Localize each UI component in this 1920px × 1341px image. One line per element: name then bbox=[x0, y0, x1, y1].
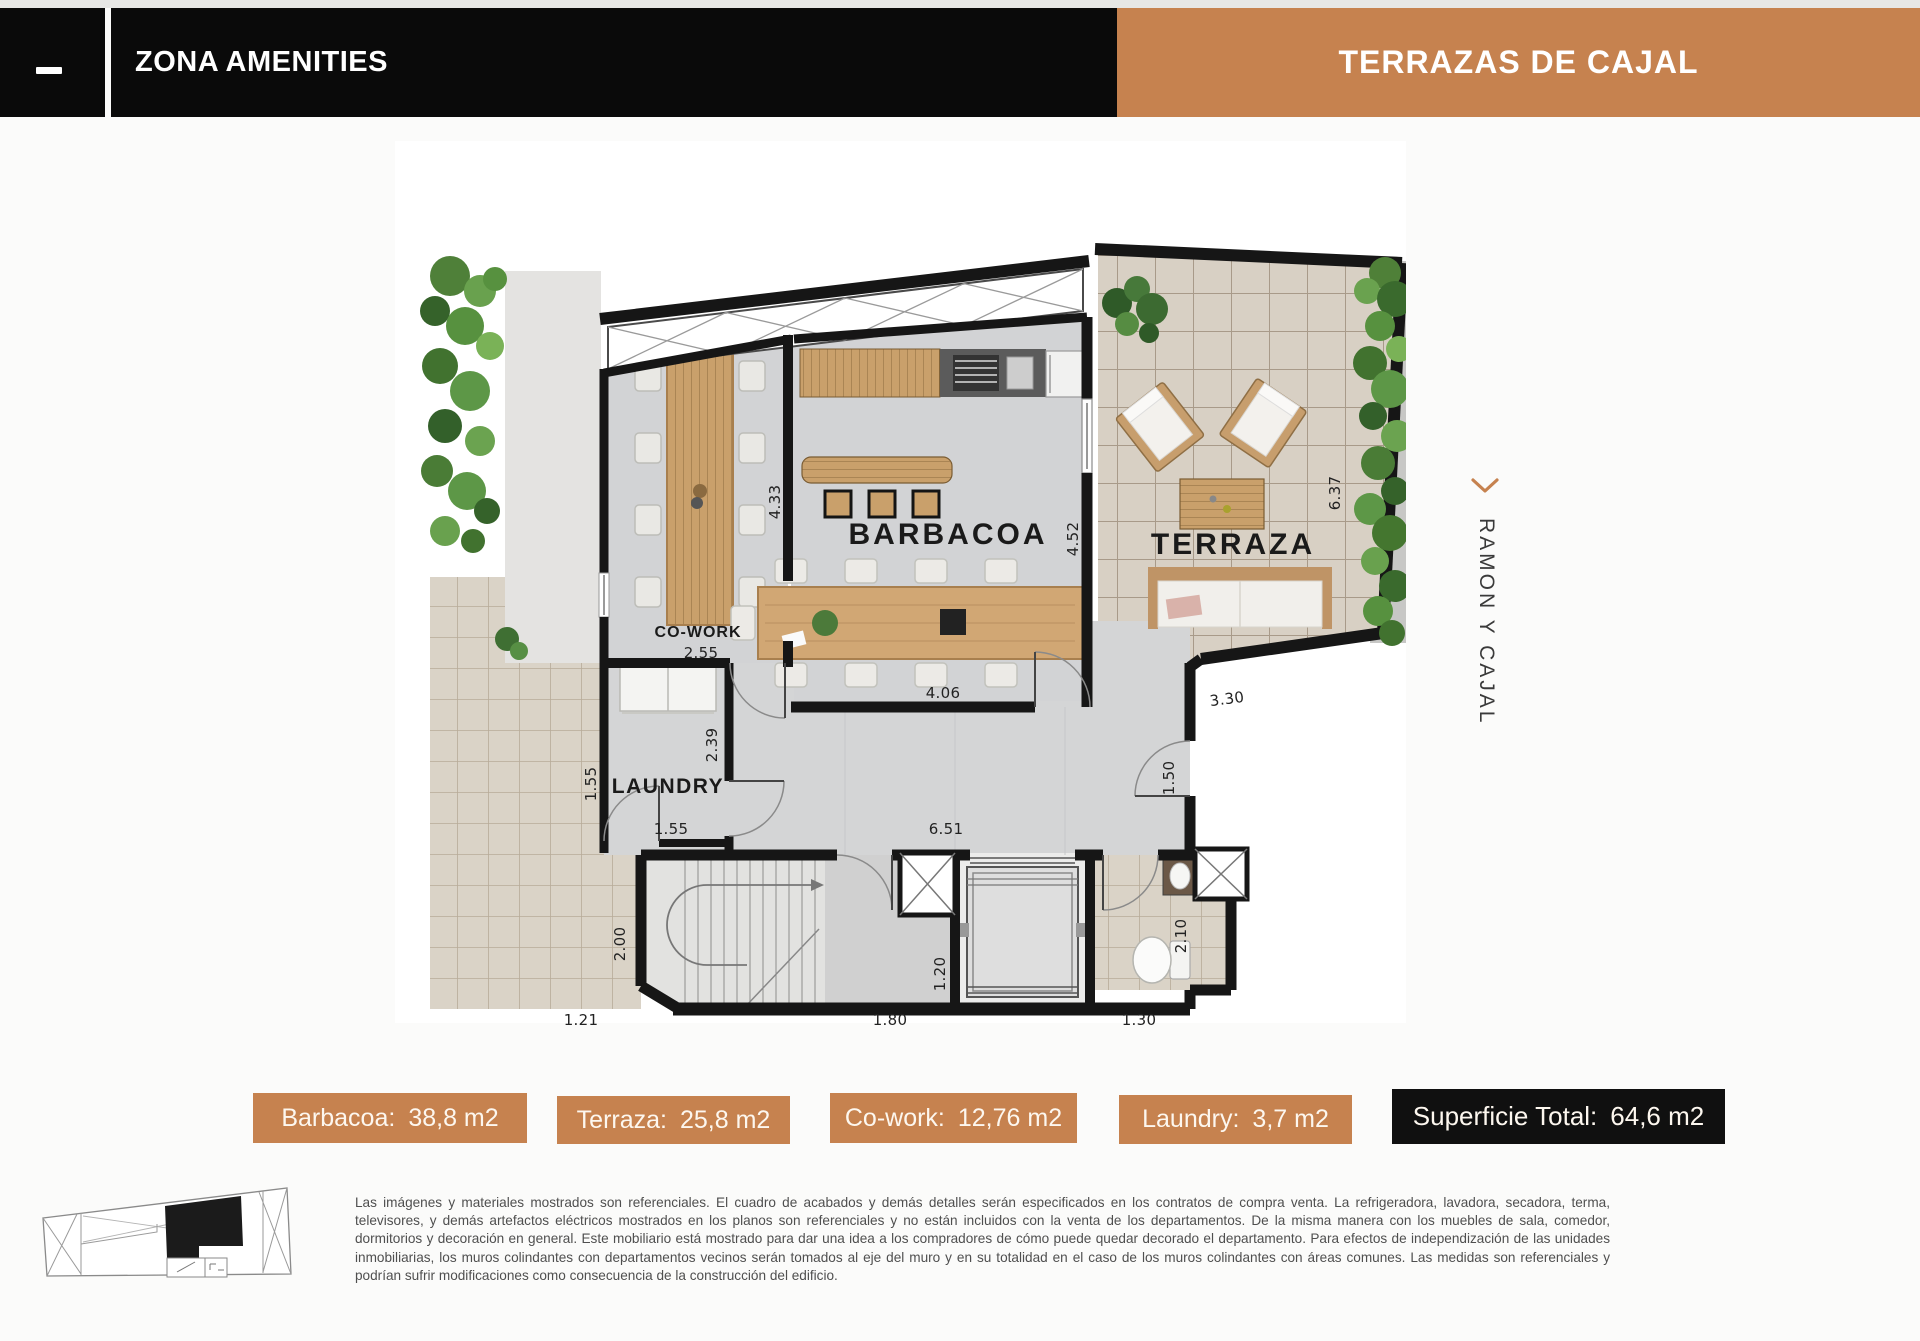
badge-barbacoa: Barbacoa: 38,8 m2 bbox=[253, 1093, 527, 1143]
badge-terraza: Terraza: 25,8 m2 bbox=[557, 1096, 790, 1144]
badge-laundry: Laundry: 3,7 m2 bbox=[1119, 1095, 1352, 1144]
dim-2-10: 2.10 bbox=[1172, 919, 1190, 954]
building-key-plan bbox=[37, 1182, 309, 1297]
badge-value: 12,76 m2 bbox=[958, 1104, 1062, 1133]
brand-bar: TERRAZAS DE CAJAL bbox=[1117, 8, 1920, 117]
dim-2-00: 2.00 bbox=[611, 927, 629, 962]
room-label-cowork: CO-WORK bbox=[655, 624, 742, 642]
dim-4-06: 4.06 bbox=[926, 684, 961, 702]
badge-label: Terraza: bbox=[577, 1106, 667, 1135]
badge-total: Superficie Total: 64,6 m2 bbox=[1392, 1089, 1725, 1144]
chevron-down-icon bbox=[1470, 477, 1500, 495]
badge-value: 25,8 m2 bbox=[680, 1106, 770, 1135]
bar-stools bbox=[825, 491, 939, 517]
brand-title: TERRAZAS DE CAJAL bbox=[1338, 44, 1698, 81]
room-label-terraza: TERRAZA bbox=[1151, 528, 1315, 562]
floorplan: BARBACOA TERRAZA CO-WORK LAUNDRY 4.33 4.… bbox=[395, 141, 1406, 1023]
dim-1-55-h: 1.55 bbox=[654, 820, 689, 838]
dining-table bbox=[758, 587, 1083, 659]
dim-1-50: 1.50 bbox=[1160, 761, 1178, 796]
dim-1-55-v: 1.55 bbox=[582, 767, 600, 802]
header-bar: ZONA AMENITIES bbox=[111, 8, 1117, 117]
dim-2-39: 2.39 bbox=[703, 728, 721, 763]
badge-cowork: Co-work: 12,76 m2 bbox=[830, 1093, 1077, 1143]
bar-counter bbox=[802, 457, 952, 483]
dim-1-20: 1.20 bbox=[931, 957, 949, 992]
badge-label: Laundry: bbox=[1142, 1105, 1239, 1134]
dim-2-55: 2.55 bbox=[684, 644, 719, 662]
room-label-laundry: LAUNDRY bbox=[612, 775, 724, 799]
header-left-square bbox=[0, 8, 105, 117]
dim-6-37: 6.37 bbox=[1326, 476, 1344, 511]
dim-4-33: 4.33 bbox=[766, 485, 784, 520]
minus-icon bbox=[36, 67, 62, 74]
disclaimer-text: Las imágenes y materiales mostrados son … bbox=[355, 1194, 1610, 1285]
street-label: RAMON Y CAJAL bbox=[1468, 518, 1498, 758]
badge-label: Barbacoa: bbox=[281, 1104, 395, 1133]
badge-label: Superficie Total: bbox=[1413, 1101, 1598, 1132]
hedge bbox=[420, 256, 507, 553]
dim-1-21: 1.21 bbox=[564, 1011, 599, 1029]
badge-label: Co-work: bbox=[845, 1104, 945, 1133]
dim-1-80: 1.80 bbox=[873, 1011, 908, 1029]
dim-1-30: 1.30 bbox=[1122, 1011, 1157, 1029]
sofa bbox=[1148, 567, 1332, 629]
badge-value: 3,7 m2 bbox=[1252, 1105, 1328, 1134]
page-title: ZONA AMENITIES bbox=[135, 46, 388, 79]
room-label-barbacoa: BARBACOA bbox=[849, 518, 1048, 552]
page-top-strip bbox=[0, 0, 1920, 8]
dim-4-52: 4.52 bbox=[1064, 522, 1082, 557]
dim-6-51: 6.51 bbox=[929, 820, 964, 838]
badge-value: 64,6 m2 bbox=[1610, 1101, 1704, 1132]
cowork-table bbox=[667, 345, 733, 625]
washer bbox=[620, 667, 716, 713]
badge-value: 38,8 m2 bbox=[408, 1104, 498, 1133]
floorplan-graphic bbox=[395, 141, 1406, 1023]
coffee-table bbox=[1180, 479, 1264, 529]
elevator bbox=[959, 858, 1086, 997]
kitchen-counter bbox=[800, 349, 1088, 397]
